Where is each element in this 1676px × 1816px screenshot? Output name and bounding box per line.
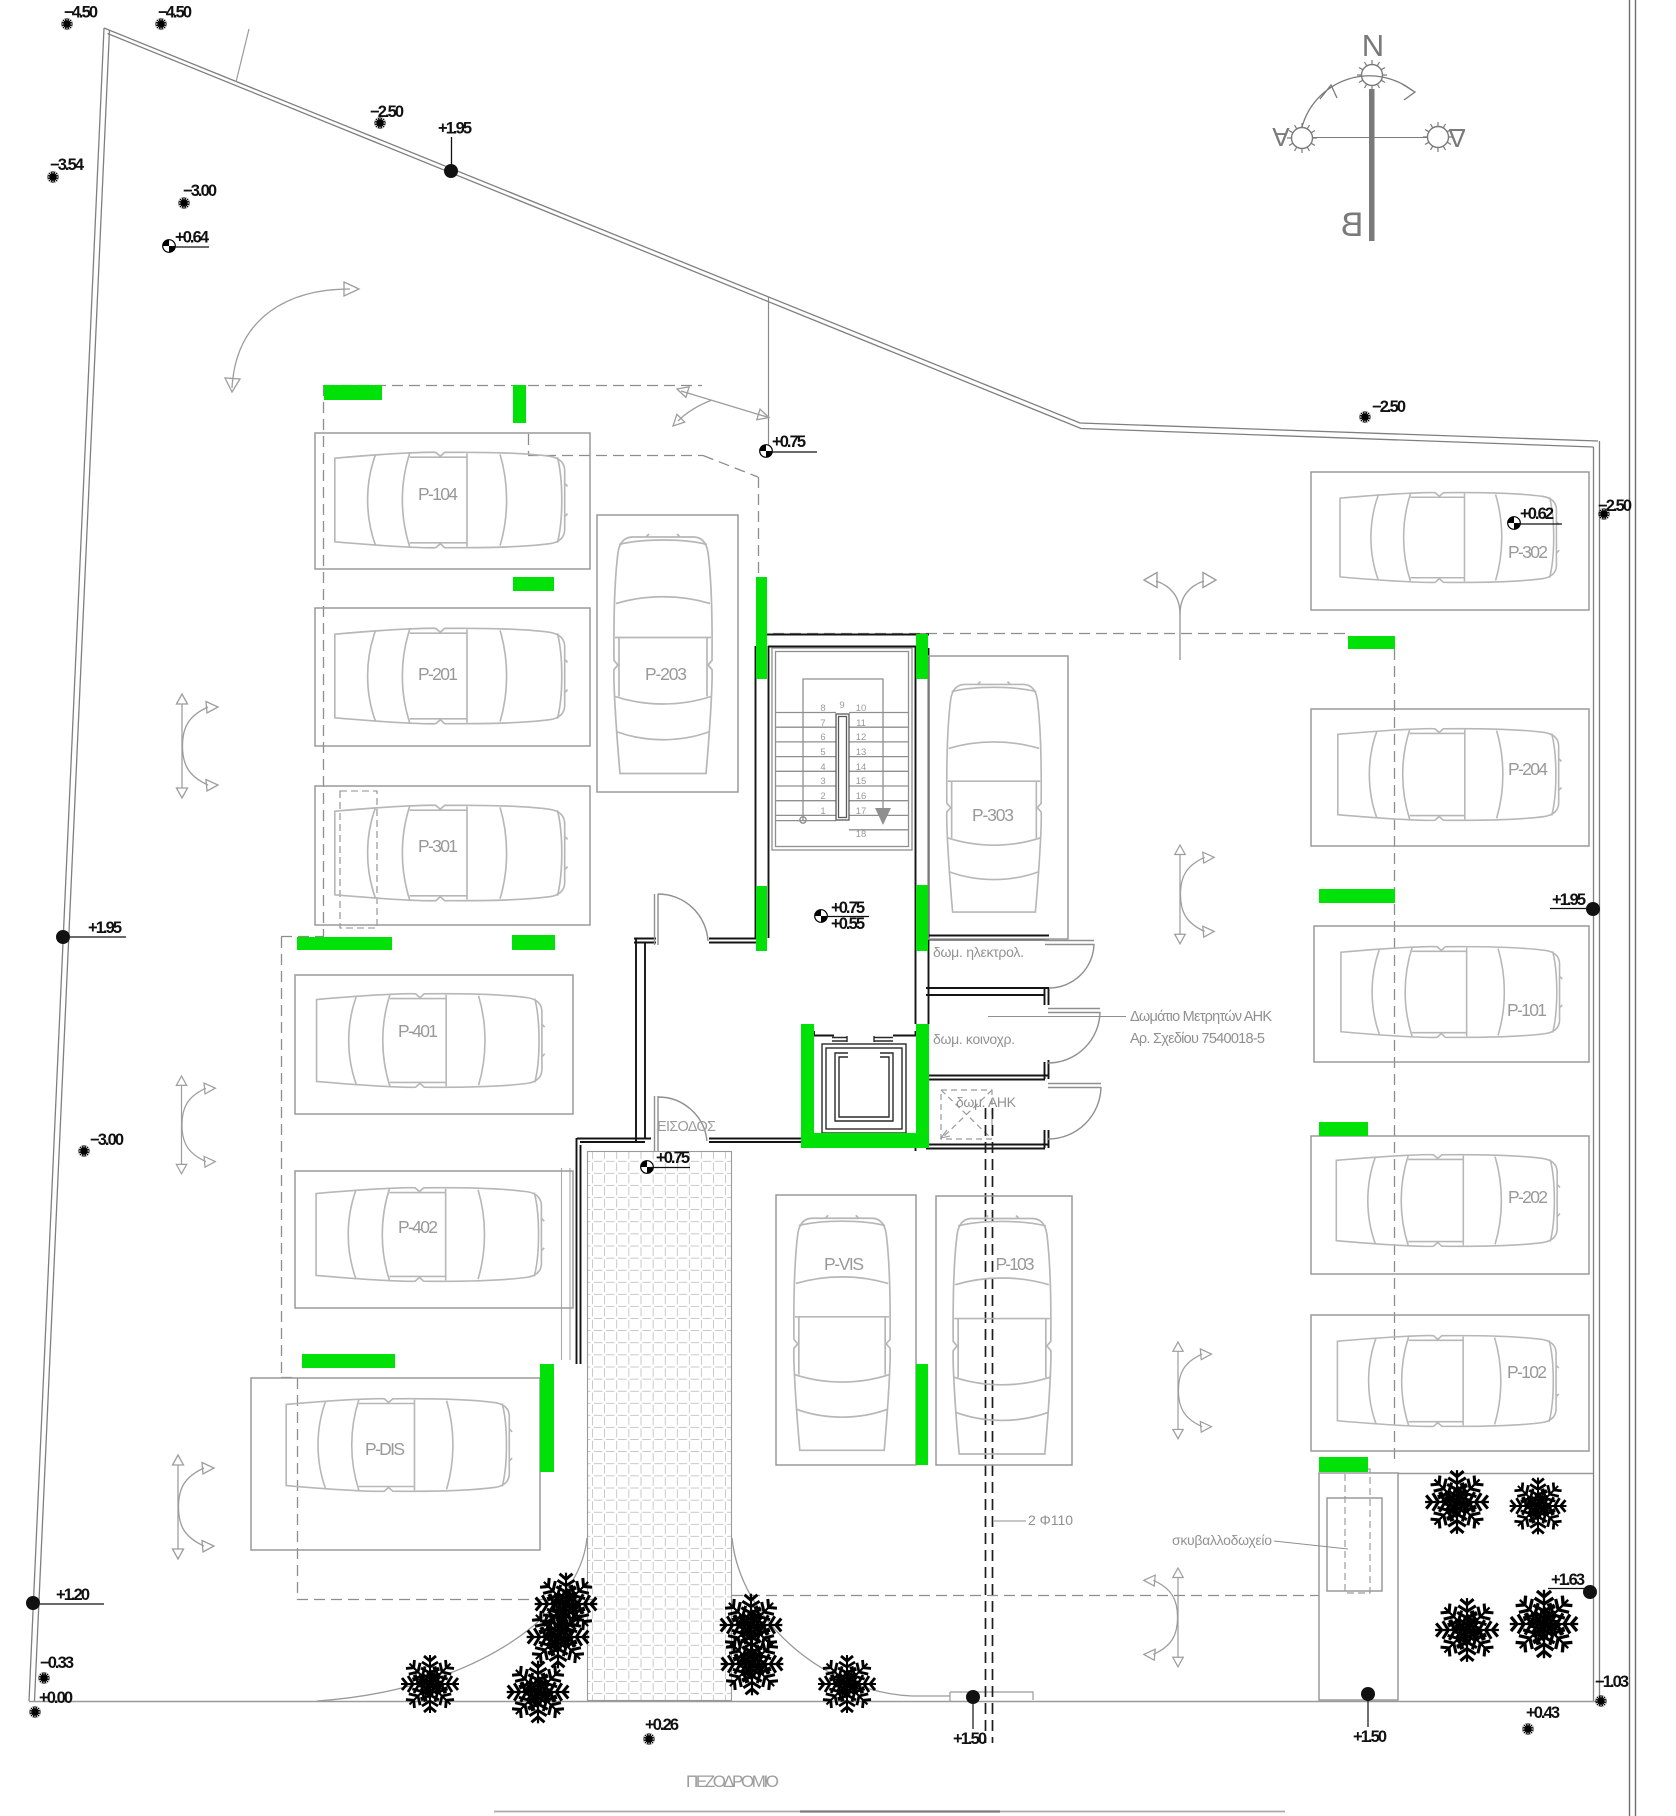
svg-text:P-204: P-204 xyxy=(1508,759,1548,779)
svg-text:δωμ. ΑΗΚ: δωμ. ΑΗΚ xyxy=(956,1094,1017,1110)
svg-text:+0.00: +0.00 xyxy=(39,1689,73,1707)
svg-text:P-104: P-104 xyxy=(418,484,458,504)
svg-text:P-102: P-102 xyxy=(1507,1362,1547,1382)
svg-text:σκυβαλλοδωχείο: σκυβαλλοδωχείο xyxy=(1172,1532,1272,1548)
svg-text:13: 13 xyxy=(856,747,867,758)
svg-text:+1.95: +1.95 xyxy=(438,120,472,138)
svg-text:2 Φ110: 2 Φ110 xyxy=(1028,1512,1073,1528)
svg-text:Δωμάτιο Μετρητών ΑΗΚ: Δωμάτιο Μετρητών ΑΗΚ xyxy=(1130,1009,1272,1025)
svg-text:−4.50: −4.50 xyxy=(64,4,98,22)
svg-text:P-DIS: P-DIS xyxy=(365,1439,405,1459)
svg-text:+0.43: +0.43 xyxy=(1526,1704,1560,1722)
svg-text:+1.95: +1.95 xyxy=(1552,891,1586,909)
svg-text:+0.55: +0.55 xyxy=(831,915,865,933)
svg-text:P-401: P-401 xyxy=(398,1021,438,1041)
svg-text:7: 7 xyxy=(820,718,825,729)
svg-text:10: 10 xyxy=(856,703,867,714)
svg-text:P-301: P-301 xyxy=(418,836,458,856)
svg-text:−0.33: −0.33 xyxy=(40,1654,74,1672)
svg-text:2: 2 xyxy=(820,791,825,802)
svg-text:δωμ. ηλεκτρολ.: δωμ. ηλεκτρολ. xyxy=(933,944,1024,960)
svg-text:−4.50: −4.50 xyxy=(158,4,192,22)
svg-text:+1.95: +1.95 xyxy=(88,919,122,937)
svg-text:+0.75: +0.75 xyxy=(656,1149,690,1167)
svg-text:P-101: P-101 xyxy=(1507,1000,1547,1020)
svg-text:−2.50: −2.50 xyxy=(370,103,404,121)
svg-text:9: 9 xyxy=(839,700,844,711)
svg-text:+0.62: +0.62 xyxy=(1520,505,1554,523)
svg-text:6: 6 xyxy=(820,732,825,743)
svg-text:−3.00: −3.00 xyxy=(183,182,217,200)
svg-text:+1.20: +1.20 xyxy=(56,1586,90,1604)
svg-text:1: 1 xyxy=(820,806,825,817)
svg-text:δωμ. κοινοχρ.: δωμ. κοινοχρ. xyxy=(933,1031,1015,1047)
svg-text:8: 8 xyxy=(820,703,825,714)
svg-text:+0.75: +0.75 xyxy=(772,433,806,451)
svg-text:18: 18 xyxy=(856,829,867,840)
svg-text:A: A xyxy=(1272,122,1290,152)
svg-text:−1.03: −1.03 xyxy=(1595,1673,1629,1691)
svg-text:P-203: P-203 xyxy=(645,664,687,684)
svg-text:17: 17 xyxy=(856,806,867,817)
svg-text:3: 3 xyxy=(820,776,825,787)
svg-text:P-103: P-103 xyxy=(996,1254,1035,1274)
svg-text:+0.64: +0.64 xyxy=(175,229,210,247)
svg-text:P-402: P-402 xyxy=(398,1217,438,1237)
svg-text:P-201: P-201 xyxy=(418,664,458,684)
svg-text:11: 11 xyxy=(856,718,866,729)
svg-text:−2.50: −2.50 xyxy=(1372,398,1406,416)
svg-text:ΕΙΣΟΔΟΣ: ΕΙΣΟΔΟΣ xyxy=(657,1119,716,1135)
svg-text:+1.50: +1.50 xyxy=(953,1730,987,1748)
svg-text:N: N xyxy=(1362,28,1384,63)
svg-text:ΠΕΖΟΔΡΟΜΙΟ: ΠΕΖΟΔΡΟΜΙΟ xyxy=(686,1772,779,1791)
svg-text:16: 16 xyxy=(856,791,867,802)
svg-text:Δ: Δ xyxy=(1448,123,1465,153)
svg-text:−3.00: −3.00 xyxy=(90,1131,124,1149)
svg-text:15: 15 xyxy=(856,776,867,787)
svg-text:P-303: P-303 xyxy=(972,805,1014,825)
svg-text:+0.26: +0.26 xyxy=(645,1716,679,1734)
svg-text:14: 14 xyxy=(856,762,867,773)
svg-text:−2.50: −2.50 xyxy=(1598,497,1632,515)
svg-text:+1.63: +1.63 xyxy=(1551,1571,1585,1589)
svg-text:+1.50: +1.50 xyxy=(1353,1728,1387,1746)
svg-text:12: 12 xyxy=(856,732,867,743)
svg-text:B: B xyxy=(1341,206,1364,244)
svg-text:5: 5 xyxy=(820,747,825,758)
svg-text:−3.54: −3.54 xyxy=(50,156,85,174)
svg-text:P-302: P-302 xyxy=(1508,542,1548,562)
svg-text:P-202: P-202 xyxy=(1508,1187,1548,1207)
svg-text:P-VIS: P-VIS xyxy=(824,1254,864,1274)
svg-text:4: 4 xyxy=(820,762,825,773)
svg-text:Αρ. Σχεδίου 7540018-5: Αρ. Σχεδίου 7540018-5 xyxy=(1130,1031,1265,1047)
